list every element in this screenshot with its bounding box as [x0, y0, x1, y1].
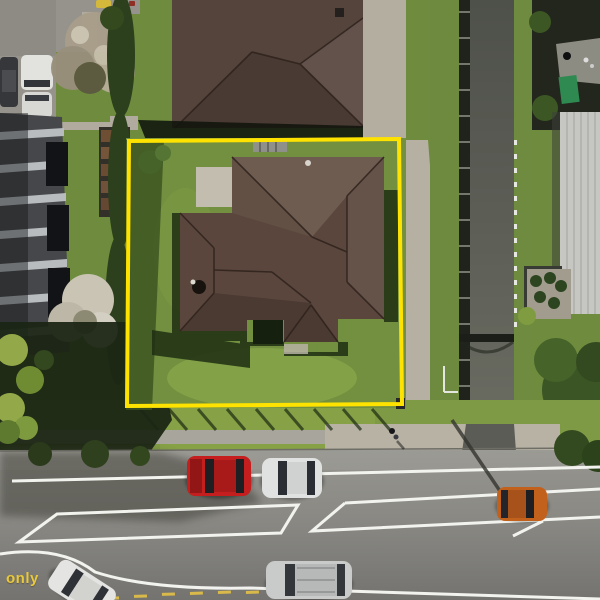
silver-suv [265, 561, 353, 600]
car-roof [214, 460, 236, 492]
windshield [285, 564, 295, 596]
white-car [260, 458, 324, 500]
hood [190, 459, 202, 493]
alley [470, 0, 514, 428]
chimney [335, 8, 344, 17]
red-car [185, 456, 253, 499]
overhanging-bush [81, 440, 109, 468]
corner-bush [155, 145, 171, 161]
overhanging-bush [130, 446, 150, 466]
grate [253, 141, 287, 152]
gate [459, 334, 514, 342]
neighbour-driveway [363, 0, 406, 142]
overhanging-bush [28, 442, 52, 466]
front-step [284, 344, 308, 354]
car-roof [287, 462, 307, 494]
dark-car-roof [2, 70, 16, 92]
van-windshield [24, 80, 50, 87]
bright-bush [518, 307, 536, 325]
rear-window [501, 490, 508, 518]
bush [529, 11, 551, 33]
orange-car [495, 487, 549, 522]
car-roof [508, 490, 526, 518]
entry-recess [253, 318, 283, 344]
rear-window [307, 461, 315, 495]
windshield [278, 461, 287, 495]
rear-window [236, 459, 244, 493]
windshield [526, 490, 534, 518]
property-section [126, 138, 406, 410]
aerial-photo: only [0, 0, 600, 600]
windshield [205, 459, 214, 493]
aerial-photo-canvas [0, 0, 600, 600]
roof-vent [305, 160, 311, 166]
red-object [129, 1, 135, 6]
green-bin [558, 75, 579, 104]
hatch-windshield [25, 95, 49, 101]
rear-window [337, 564, 345, 596]
watermark-text: only [6, 570, 39, 587]
patio-pad [196, 167, 233, 207]
